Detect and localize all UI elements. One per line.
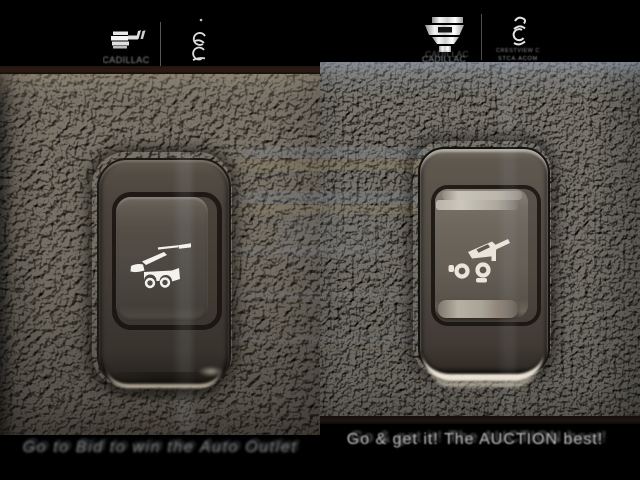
svg-text:CADILLAC: CADILLAC: [425, 49, 469, 59]
svg-text:CADILLAC: CADILLAC: [103, 55, 150, 65]
